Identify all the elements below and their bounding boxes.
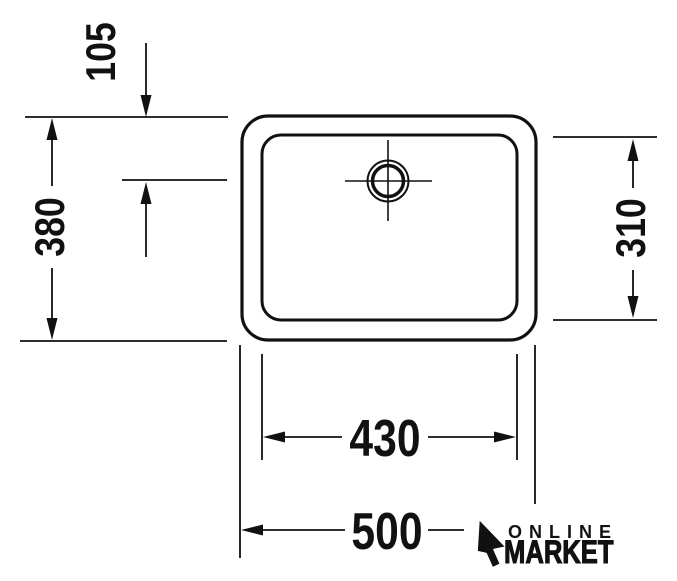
basin-outline bbox=[242, 116, 536, 340]
drain bbox=[345, 140, 432, 221]
dim-105-label: 105 bbox=[78, 22, 124, 82]
dim-430-arrow-right bbox=[494, 432, 516, 443]
sink-technical-drawing: 105 380 310 430 bbox=[0, 0, 677, 581]
dim-310-arrow-down bbox=[628, 296, 639, 318]
dim-380-label: 380 bbox=[27, 197, 73, 257]
dim-105-arrow-up bbox=[141, 182, 152, 204]
dimension-430: 430 bbox=[263, 410, 516, 468]
technical-drawing-page: 105 380 310 430 bbox=[0, 0, 677, 581]
dimension-310: 310 bbox=[608, 139, 654, 318]
dimension-105: 105 bbox=[78, 22, 151, 257]
dim-380-arrow-down bbox=[47, 318, 58, 340]
extension-lines bbox=[20, 117, 657, 558]
dim-310-label: 310 bbox=[608, 198, 654, 258]
online-market-logo: ONLINE MARKET bbox=[472, 514, 652, 576]
dim-430-label: 430 bbox=[349, 410, 420, 468]
outer-rim-outline bbox=[242, 116, 536, 340]
dimension-380: 380 bbox=[27, 118, 73, 340]
logo-text-market: MARKET bbox=[504, 536, 614, 568]
dim-500-label: 500 bbox=[351, 503, 422, 561]
dim-105-arrow-down bbox=[141, 95, 152, 117]
inner-basin-outline bbox=[262, 135, 517, 320]
